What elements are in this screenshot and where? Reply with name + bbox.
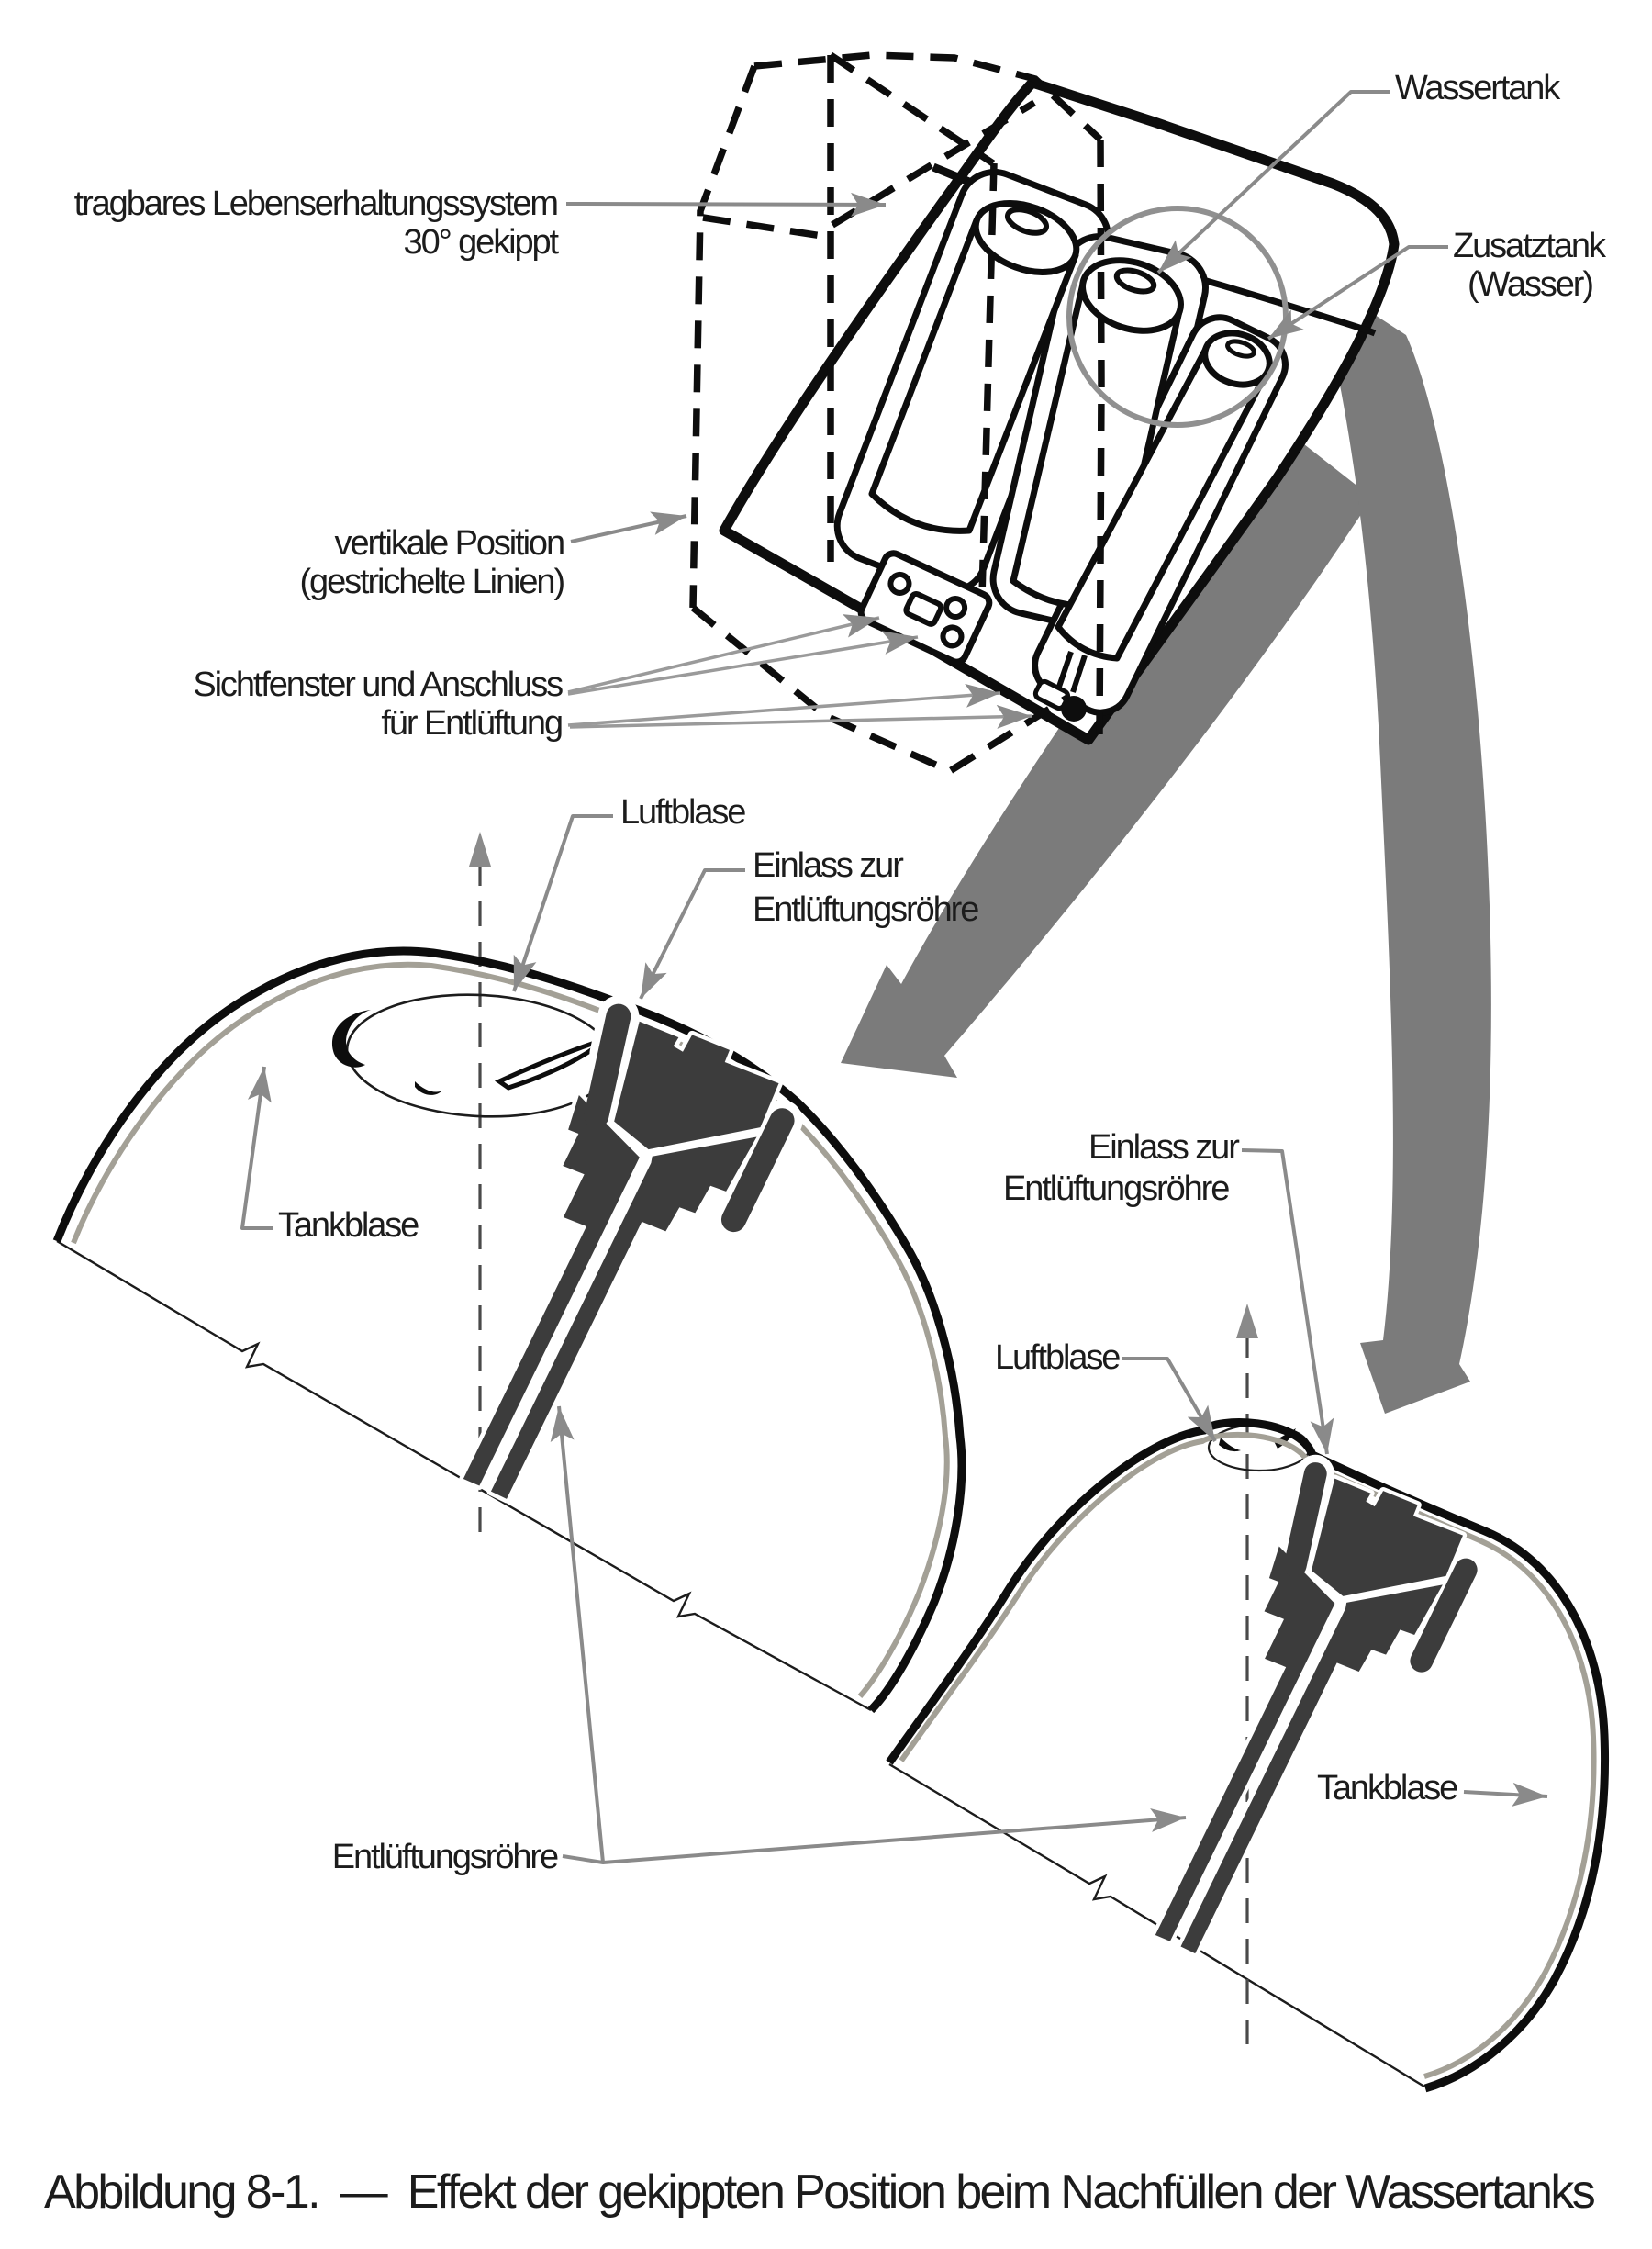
svg-text:Luftblase: Luftblase bbox=[995, 1338, 1120, 1377]
svg-text:Tankblase: Tankblase bbox=[1317, 1769, 1457, 1807]
svg-text:Einlass zur: Einlass zur bbox=[1088, 1128, 1240, 1167]
svg-text:tragbares Lebenserhaltungssyst: tragbares Lebenserhaltungssystem bbox=[74, 185, 558, 223]
svg-text:Entlüftungsröhre: Entlüftungsröhre bbox=[753, 890, 978, 929]
svg-text:(Wasser): (Wasser) bbox=[1468, 265, 1592, 304]
svg-text:Einlass zur: Einlass zur bbox=[753, 846, 904, 885]
svg-text:(gestrichelte Linien): (gestrichelte Linien) bbox=[299, 563, 564, 601]
svg-text:Wassertank: Wassertank bbox=[1395, 69, 1561, 107]
svg-text:vertikale Position: vertikale Position bbox=[335, 524, 564, 563]
svg-text:Sichtfenster und Anschluss: Sichtfenster und Anschluss bbox=[193, 666, 563, 704]
svg-text:Entlüftungsröhre: Entlüftungsröhre bbox=[1003, 1169, 1229, 1208]
svg-text:Entlüftungsröhre: Entlüftungsröhre bbox=[332, 1838, 558, 1876]
svg-text:Luftblase: Luftblase bbox=[620, 793, 745, 832]
svg-text:Abbildung 8-1. — Effekt der: Abbildung 8-1. — Effekt der gekippten Po… bbox=[44, 2165, 1595, 2219]
svg-text:Zusatztank: Zusatztank bbox=[1453, 227, 1607, 265]
svg-text:für Entlüftung: für Entlüftung bbox=[381, 704, 562, 743]
svg-text:30° gekippt: 30° gekippt bbox=[404, 223, 560, 262]
svg-text:Tankblase: Tankblase bbox=[278, 1206, 419, 1245]
